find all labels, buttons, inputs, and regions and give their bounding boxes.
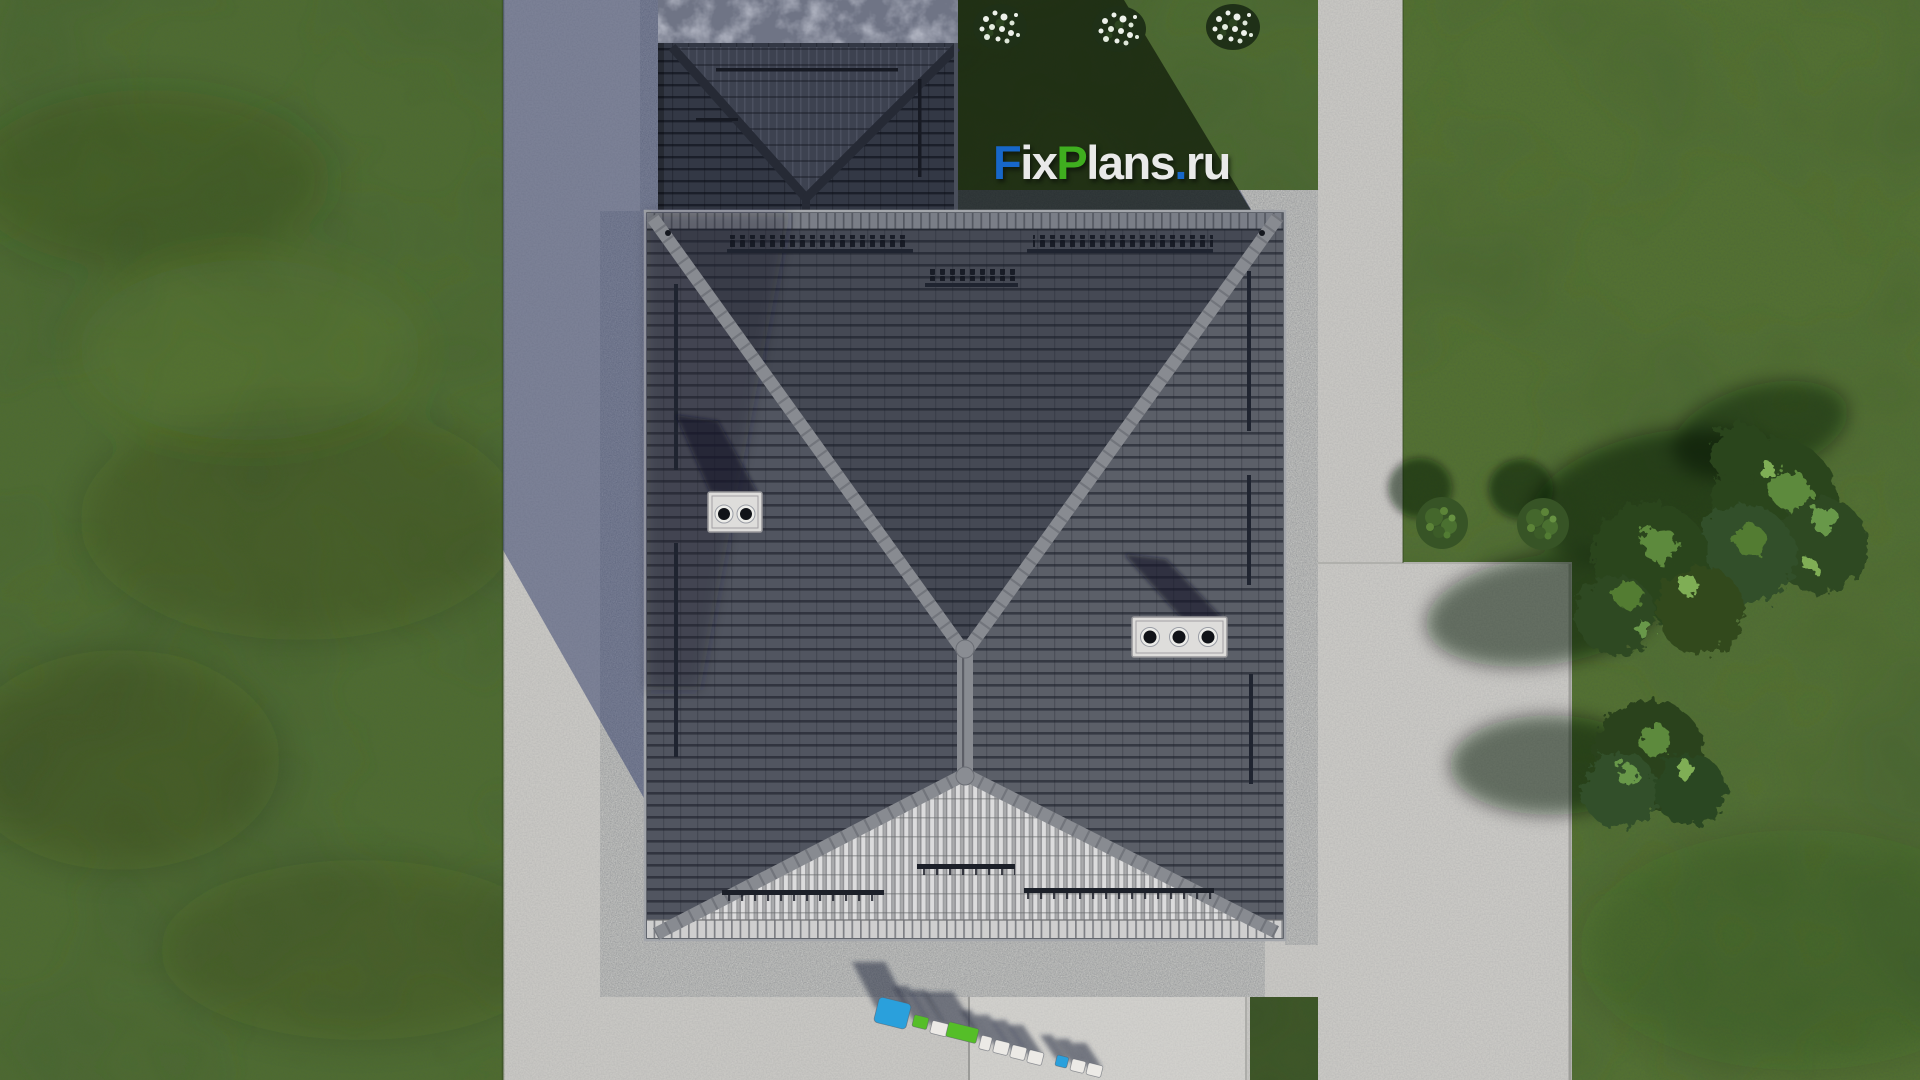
stone-parapet-veins bbox=[658, 0, 958, 43]
flue bbox=[1202, 631, 1215, 644]
flower-bush bbox=[1092, 6, 1146, 52]
annex-snow-rail bbox=[696, 118, 738, 121]
flower-bush bbox=[1206, 4, 1260, 50]
logo-part: ru bbox=[1186, 136, 1230, 189]
shrub bbox=[1416, 497, 1468, 549]
flower-bush bbox=[973, 4, 1027, 50]
logo-part: . bbox=[1174, 136, 1186, 189]
logo-part: lans bbox=[1086, 136, 1174, 189]
chimney-east bbox=[1132, 617, 1227, 657]
logo-part: F bbox=[993, 136, 1020, 189]
flue bbox=[740, 508, 752, 520]
chimney-west bbox=[708, 492, 762, 532]
annex-snow-rail bbox=[716, 68, 898, 72]
annex-east-edge bbox=[954, 43, 958, 210]
flue bbox=[1173, 631, 1186, 644]
annex-roof bbox=[658, 0, 958, 212]
logo-part: ix bbox=[1020, 136, 1056, 189]
render-viewport: FixPlans.ru bbox=[0, 0, 1920, 1080]
main-roof bbox=[645, 211, 1285, 940]
fixplans-watermark: FixPlans.ru bbox=[993, 139, 1230, 186]
site-plan-render bbox=[0, 0, 1920, 1080]
letter-block-dot bbox=[1055, 1055, 1069, 1069]
south-eave-ribs bbox=[647, 920, 1283, 938]
flue bbox=[718, 508, 730, 520]
annex-west-edge-shade bbox=[658, 43, 664, 210]
annex-valley-post bbox=[802, 196, 810, 212]
logo-part: P bbox=[1056, 136, 1086, 189]
flue bbox=[1144, 631, 1157, 644]
shrub bbox=[1517, 498, 1569, 550]
annex-snow-rail bbox=[918, 79, 922, 177]
grass-strip-shade bbox=[1250, 997, 1318, 1080]
